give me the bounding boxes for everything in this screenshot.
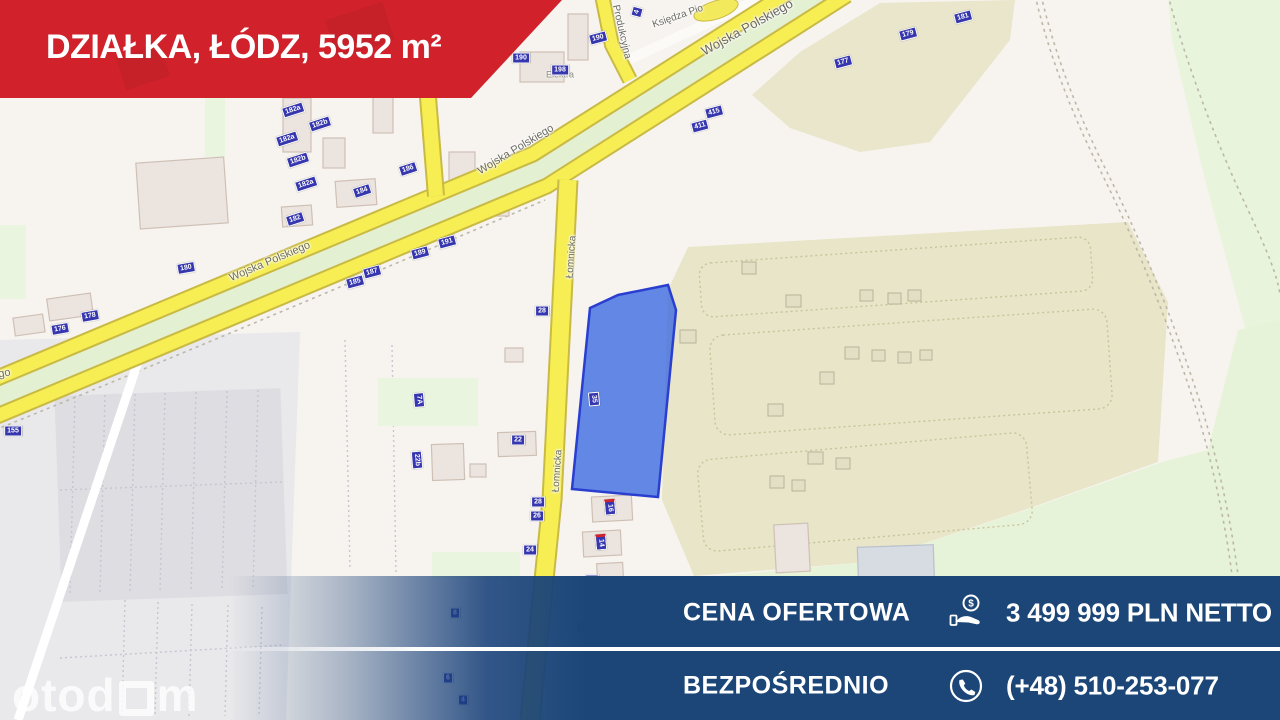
house-number-marker: 26 [530, 511, 544, 522]
listing-promo-image: Wojska PolskiegoWojska PolskiegoWojska P… [0, 0, 1280, 720]
house-number-marker: 14 [595, 534, 607, 551]
green-field-topright [1168, 0, 1280, 346]
offer-row-price: CENA OFERTOWA $ 3 499 999 PLN NETTO [0, 578, 1280, 648]
house-number-marker: 198 [551, 65, 569, 76]
house-number-marker: 7A [413, 392, 425, 408]
coin-hand-icon: $ [946, 593, 986, 633]
svg-text:$: $ [968, 599, 974, 610]
logo-text-left: otod [12, 672, 116, 718]
plot-highlight-polygon [572, 285, 676, 497]
house-number-marker: 28 [535, 306, 549, 317]
house-number-marker: 22 [511, 435, 525, 446]
price-value: 3 499 999 PLN NETTO [1006, 598, 1272, 629]
road-north-stub [428, 97, 436, 196]
logo-square-icon [119, 681, 154, 716]
listing-title: DZIAŁKA, ŁÓDZ, 5952 m² [46, 28, 441, 67]
house-number-marker: 22b [411, 451, 424, 470]
house-number-marker: 35 [588, 392, 600, 407]
logo-text-right: m [157, 672, 199, 718]
phone-value: (+48) 510-253-077 [1006, 671, 1219, 702]
contact-label: BEZPOŚREDNIO [683, 672, 889, 701]
price-label: CENA OFERTOWA [683, 599, 910, 628]
house-number-marker: 28 [531, 497, 545, 508]
house-number-marker: 24 [523, 545, 537, 556]
phone-circle-icon [946, 666, 986, 706]
house-number-marker: 16 [604, 499, 616, 516]
house-number-marker: 155 [4, 426, 22, 437]
house-number-marker: 190 [512, 53, 530, 64]
otodom-logo: otod m [12, 672, 199, 718]
